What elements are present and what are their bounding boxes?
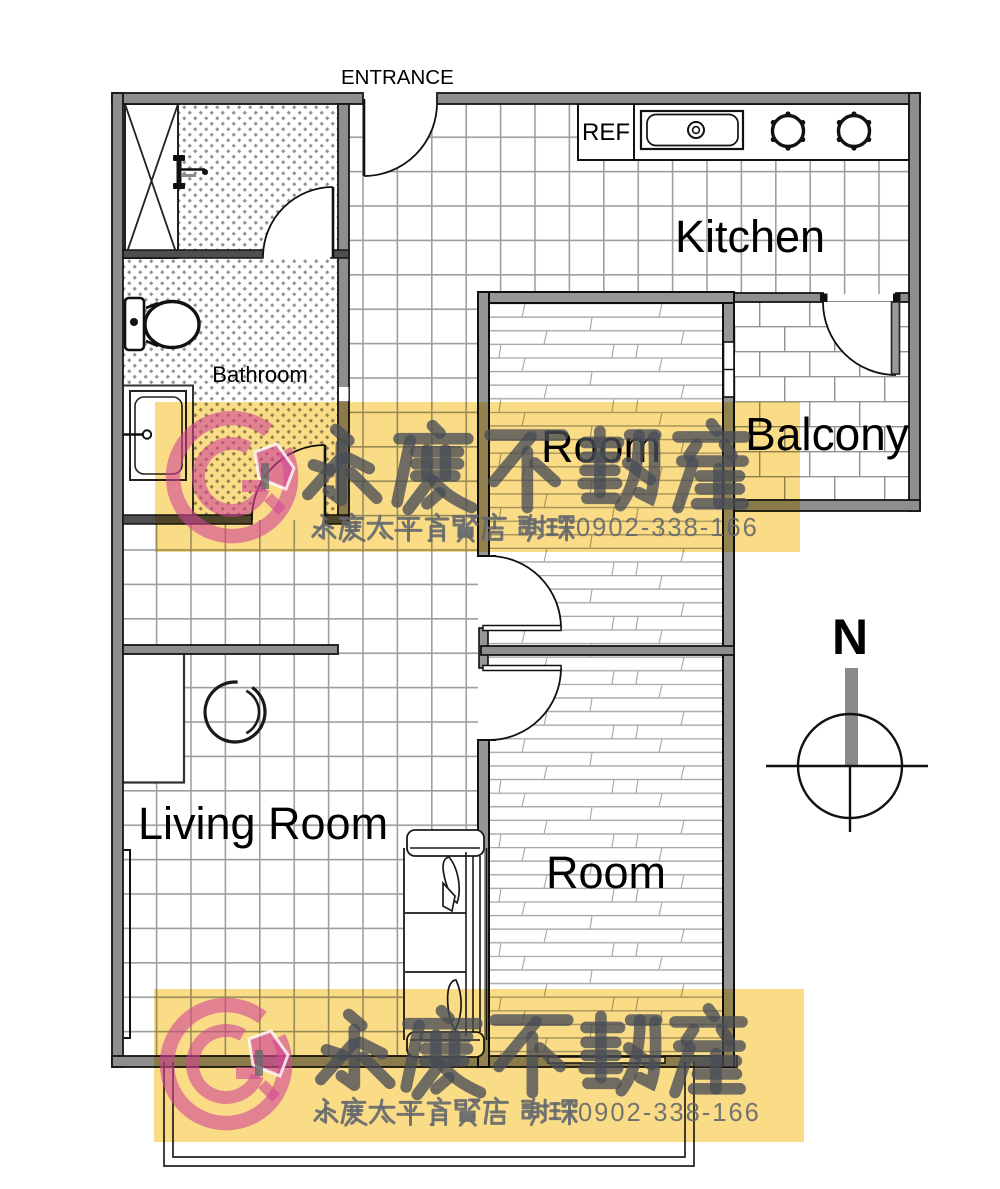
svg-text:Bathroom: Bathroom <box>212 362 307 387</box>
svg-text:N: N <box>832 609 868 665</box>
svg-text:Kitchen: Kitchen <box>675 211 825 262</box>
svg-text:Living Room: Living Room <box>138 798 388 849</box>
svg-text:0902-338-166: 0902-338-166 <box>578 1099 761 1127</box>
svg-text:ENTRANCE: ENTRANCE <box>341 66 454 89</box>
svg-text:Room: Room <box>546 847 666 898</box>
svg-text:0902-338-166: 0902-338-166 <box>576 514 759 542</box>
svg-text:REF: REF <box>582 119 630 146</box>
